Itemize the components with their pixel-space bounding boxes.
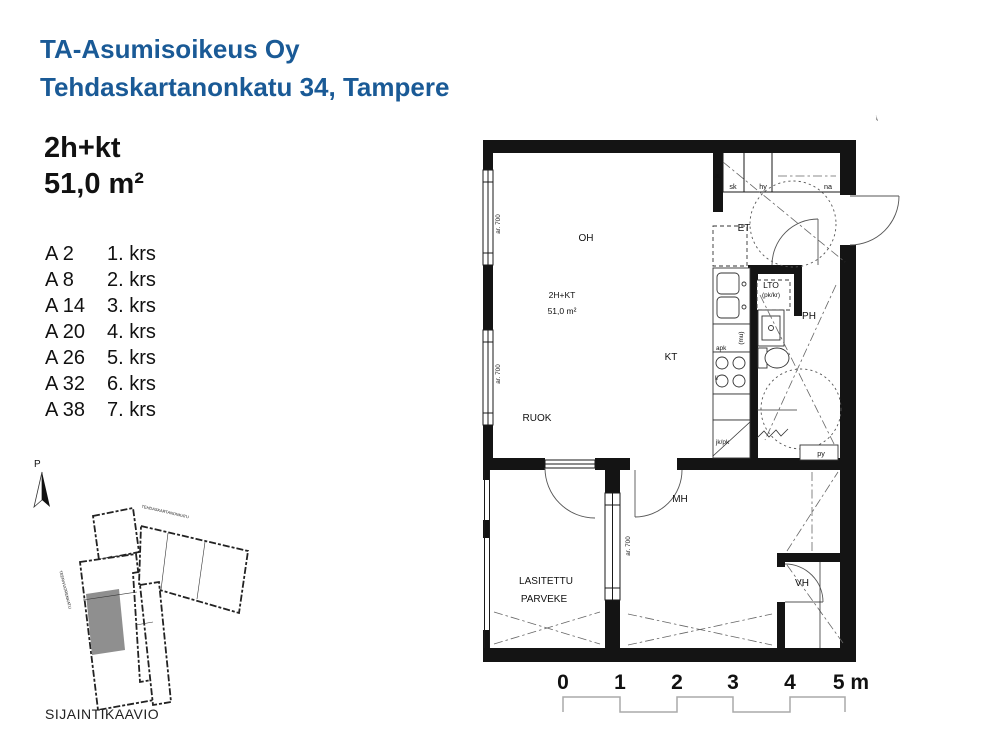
unit-row: A 82. krs	[45, 267, 156, 293]
label-apk: apk	[716, 345, 727, 352]
company-name: TA-Asumisoikeus Oy	[40, 30, 449, 68]
unit-row: A 387. krs	[45, 397, 156, 423]
site-plan-caption: SIJAINTIKAAVIO	[45, 706, 159, 722]
window-sill-label: ar. 700	[495, 364, 502, 384]
label-li: li	[715, 375, 718, 382]
unit-id: A 26	[45, 345, 107, 371]
scale-tick: 0	[557, 671, 569, 694]
bathroom-door-arc	[772, 219, 818, 265]
balcony-glazing	[485, 470, 490, 648]
north-label: P	[876, 114, 877, 116]
label-mu: (mu)	[738, 331, 745, 344]
unit-id: A 32	[45, 371, 107, 397]
toilet-bowl	[765, 348, 789, 368]
closet-label-sk: sk	[729, 182, 737, 191]
unit-row: A 21. krs	[45, 241, 156, 267]
room-label-et: ET	[738, 223, 751, 234]
street-label-left: TEERIVUORENKATU	[58, 570, 72, 609]
unit-floor: 2. krs	[107, 267, 156, 293]
room-label-vh: VH	[795, 578, 809, 589]
scale-tick: 3	[727, 671, 739, 694]
unit-floor: 4. krs	[107, 319, 156, 345]
street-label-top: TEHDASKARTANONKATU	[141, 504, 189, 520]
unit-row: A 204. krs	[45, 319, 156, 345]
room-label-mh: MH	[672, 494, 688, 505]
apartment-type: 2h+kt	[44, 130, 144, 166]
hall-closets: sk hy na	[723, 153, 840, 192]
unit-floor: 7. krs	[107, 397, 156, 423]
unit-row: A 326. krs	[45, 371, 156, 397]
scale-bar: 0 1 2 3 4 5 m	[548, 665, 870, 723]
site-plan: P TEHDASKARTANONKATU TEERIVUORENKATU	[25, 450, 275, 710]
plan-area-line1: 2H+KT	[549, 290, 576, 300]
plan-area-line2: 51,0 m²	[548, 306, 577, 316]
address: Tehdaskartanonkatu 34, Tampere	[40, 68, 449, 106]
north-needle-tail	[876, 119, 877, 121]
scale-tick: 4	[784, 671, 796, 694]
scale-tick: 1	[614, 671, 626, 694]
room-label-lto: LTO	[763, 280, 779, 290]
floor-plan: sk hy na apk (mu) l	[478, 138, 910, 668]
floorplan-page: TA-Asumisoikeus Oy Tehdaskartanonkatu 34…	[0, 0, 1000, 750]
room-label-lto-sub: (pk/kr)	[762, 292, 780, 299]
scale-tick: 2	[671, 671, 683, 694]
unit-id: A 20	[45, 319, 107, 345]
site-north-arrow-icon: P	[34, 459, 50, 507]
unit-id: A 38	[45, 397, 107, 423]
page-title: TA-Asumisoikeus Oy Tehdaskartanonkatu 34…	[40, 30, 449, 106]
room-label-ph: PH	[802, 311, 816, 322]
site-buildings	[80, 508, 248, 710]
room-label-kt: KT	[665, 352, 678, 363]
unit-list: A 21. krs A 82. krs A 143. krs A 204. kr…	[45, 241, 156, 423]
kitchen-fixtures: apk (mu) li jk/pk jk	[713, 173, 750, 458]
unit-floor: 3. krs	[107, 293, 156, 319]
label-py: py	[817, 449, 825, 458]
room-label-ruok: RUOK	[523, 413, 552, 424]
room-label-oh: OH	[579, 233, 594, 244]
apartment-summary: 2h+kt 51,0 m²	[44, 130, 144, 202]
window-sill-label: ar. 700	[625, 536, 632, 556]
apartment-area: 51,0 m²	[44, 166, 144, 202]
window-sill-label: ar. 700	[495, 214, 502, 234]
site-north-label: P	[34, 459, 41, 470]
room-label-balcony1: LASITETTU	[519, 576, 573, 587]
unit-row: A 143. krs	[45, 293, 156, 319]
closet-label-hy: hy	[759, 182, 767, 191]
sink-basin	[717, 297, 739, 318]
sink-basin	[717, 273, 739, 294]
label-jkpk: jk/pk	[715, 439, 730, 446]
scale-tick: 5 m	[833, 671, 869, 694]
unit-floor: 1. krs	[107, 241, 156, 267]
window	[483, 170, 620, 600]
unit-id: A 14	[45, 293, 107, 319]
unit-floor: 5. krs	[107, 345, 156, 371]
unit-row: A 265. krs	[45, 345, 156, 371]
balcony-door-arc	[545, 468, 595, 518]
unit-id: A 8	[45, 267, 107, 293]
closet-label-na: na	[824, 182, 832, 191]
room-label-balcony2: PARVEKE	[521, 594, 568, 605]
unit-floor: 6. krs	[107, 371, 156, 397]
label-jk: jk	[714, 173, 721, 179]
entry-door-arc	[850, 196, 899, 245]
unit-id: A 2	[45, 241, 107, 267]
scale-steps	[563, 697, 845, 712]
